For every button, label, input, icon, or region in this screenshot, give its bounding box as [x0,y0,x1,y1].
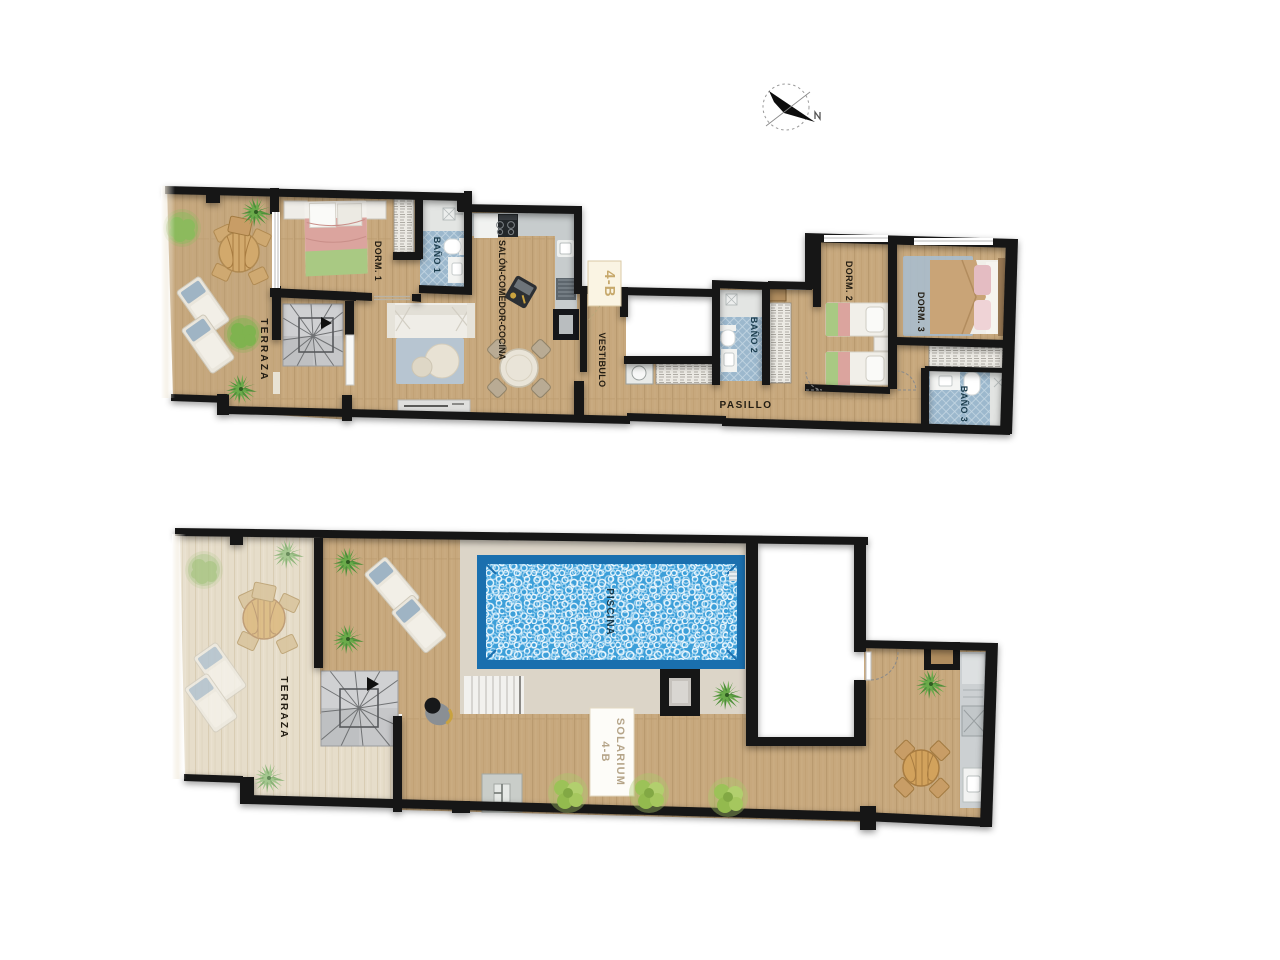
svg-text:SOLARIUM: SOLARIUM [614,718,626,786]
svg-text:TERRAZA: TERRAZA [278,676,289,739]
svg-text:BAÑO 2: BAÑO 2 [749,317,759,353]
svg-text:BAÑO 1: BAÑO 1 [432,237,442,273]
svg-text:TERRAZA: TERRAZA [258,318,269,381]
svg-text:BAÑO 3: BAÑO 3 [959,386,969,422]
svg-text:4-B: 4-B [601,270,618,297]
svg-text:PASILLO: PASILLO [719,400,772,411]
svg-text:DORM. 2: DORM. 2 [844,261,854,301]
svg-text:VESTIBULO: VESTIBULO [597,332,607,387]
svg-text:4-B: 4-B [599,741,611,762]
svg-text:SALÓN-COMEDOR-COCINA: SALÓN-COMEDOR-COCINA [497,240,508,360]
svg-text:DORM. 1: DORM. 1 [373,241,383,281]
svg-text:DORM. 3: DORM. 3 [916,292,926,332]
svg-text:PISCINA: PISCINA [604,588,615,636]
